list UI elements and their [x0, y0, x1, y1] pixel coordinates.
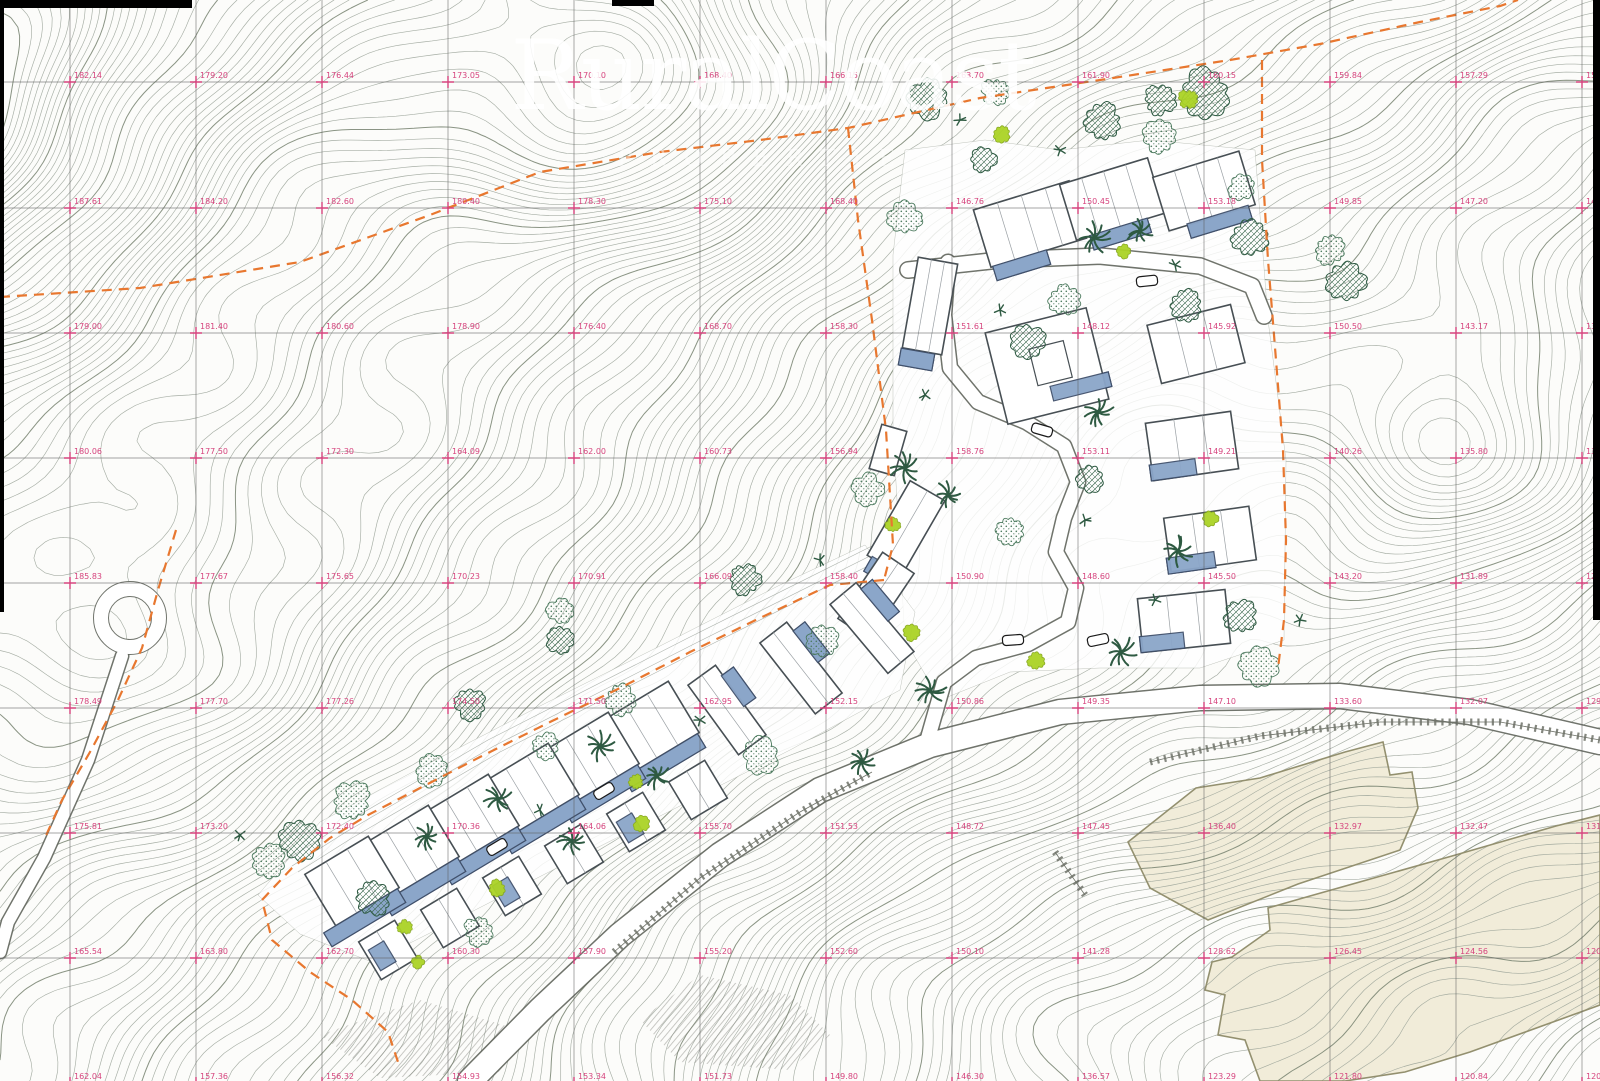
grid-elevation-label: 151.53: [830, 822, 858, 831]
grid-elevation-label: 182.60: [326, 197, 354, 206]
grid-elevation-label: 120.84: [1460, 1072, 1488, 1081]
villa-building: [1135, 590, 1230, 653]
grid-elevation-label: 143.20: [1334, 572, 1362, 581]
site-plan-map: 182.14179.20176.44173.05170.10168.40166.…: [0, 0, 1600, 1081]
grid-elevation-label: 166.15: [830, 71, 858, 80]
grid-elevation-label: 153.34: [578, 1072, 606, 1081]
grid-elevation-label: 131.86: [1586, 822, 1600, 831]
palm-trunk: [928, 689, 932, 693]
grid-elevation-label: 182.14: [74, 71, 102, 80]
grid-elevation-label: 150.50: [1334, 322, 1362, 331]
grid-elevation-label: 170.23: [452, 572, 480, 581]
grid-elevation-label: 175.65: [326, 572, 354, 581]
grid-elevation-label: 148.60: [1082, 572, 1110, 581]
grid-elevation-label: 132.07: [1460, 697, 1488, 706]
grid-elevation-label: 175.10: [704, 197, 732, 206]
grid-elevation-label: 172.30: [326, 447, 354, 456]
grid-elevation-label: 148.72: [956, 822, 984, 831]
grid-elevation-label: 178.30: [578, 197, 606, 206]
grid-elevation-label: 162.04: [74, 1072, 102, 1081]
grid-elevation-label: 175.81: [74, 822, 102, 831]
palm-trunk: [860, 760, 864, 764]
grid-elevation-label: 178.90: [452, 322, 480, 331]
shrub: [1178, 90, 1197, 108]
palm-trunk: [903, 466, 907, 470]
grid-elevation-label: 146.30: [956, 1072, 984, 1081]
grid-elevation-label: 128.62: [1208, 947, 1236, 956]
grid-elevation-label: 147.45: [1082, 822, 1110, 831]
grid-elevation-label: 126.45: [1334, 947, 1362, 956]
grid-elevation-label: 147.20: [1460, 197, 1488, 206]
grid-elevation-label: 143.17: [1460, 322, 1488, 331]
palm-trunk: [1138, 229, 1142, 233]
grid-elevation-label: 120.42: [1586, 947, 1600, 956]
grid-elevation-label: 150.10: [956, 947, 984, 956]
grid-elevation-label: 177.26: [326, 697, 354, 706]
grid-elevation-label: 159.84: [1334, 71, 1362, 80]
grid-elevation-label: 149.35: [1082, 697, 1110, 706]
grid-elevation-label: 180.06: [74, 447, 102, 456]
car-outline: [1136, 275, 1158, 287]
grid-elevation-label: 158.76: [956, 447, 984, 456]
palm-trunk: [598, 744, 602, 748]
grid-elevation-label: 156.94: [830, 447, 858, 456]
grid-elevation-label: 150.45: [1082, 197, 1110, 206]
grid-elevation-label: 157.90: [578, 947, 606, 956]
grid-elevation-label: 140.26: [1334, 447, 1362, 456]
grid-elevation-label: 151.61: [956, 322, 984, 331]
grid-elevation-label: 147.10: [1208, 697, 1236, 706]
grid-elevation-label: 173.20: [200, 822, 228, 831]
grid-elevation-label: 141.28: [1082, 947, 1110, 956]
grid-elevation-label: 173.05: [452, 71, 480, 80]
grid-elevation-label: 177.50: [200, 447, 228, 456]
grid-elevation-label: 136.57: [1082, 1072, 1110, 1081]
grid-elevation-label: 184.20: [200, 197, 228, 206]
palm-trunk: [1092, 236, 1096, 240]
grid-elevation-label: 185.83: [74, 572, 102, 581]
site-plan-svg: 182.14179.20176.44173.05170.10168.40166.…: [0, 0, 1600, 1081]
grid-elevation-label: 132.47: [1460, 822, 1488, 831]
palm-trunk: [1176, 549, 1180, 553]
grid-elevation-label: 150.86: [956, 697, 984, 706]
grid-elevation-label: 162.95: [704, 697, 732, 706]
grid-elevation-label: 181.40: [200, 322, 228, 331]
grid-elevation-label: 177.70: [200, 697, 228, 706]
grid-elevation-label: 149.85: [1334, 197, 1362, 206]
grid-elevation-label: 172.40: [326, 822, 354, 831]
grid-elevation-label: 148.12: [1082, 322, 1110, 331]
scan-artifact-bar: [612, 0, 654, 6]
grid-elevation-label: 121.80: [1334, 1072, 1362, 1081]
palm-trunk: [425, 834, 429, 838]
tree-light-canopy: [252, 843, 285, 879]
grid-elevation-label: 155.70: [704, 822, 732, 831]
grid-elevation-label: 170.10: [578, 71, 606, 80]
grid-elevation-label: 149.21: [1208, 447, 1236, 456]
grid-elevation-label: 157.36: [200, 1072, 228, 1081]
palm-trunk: [946, 493, 950, 497]
palm-trunk: [655, 774, 659, 778]
grid-elevation-label: 178.49: [74, 697, 102, 706]
grid-elevation-label: 179.00: [74, 322, 102, 331]
grid-elevation-label: 170.36: [452, 822, 480, 831]
parked-car: [1002, 634, 1024, 645]
grid-elevation-label: 168.70: [704, 322, 732, 331]
grid-elevation-label: 150.90: [956, 572, 984, 581]
grid-elevation-label: 152.15: [830, 697, 858, 706]
grid-elevation-label: 157.29: [1460, 71, 1488, 80]
grid-elevation-label: 133.60: [1334, 697, 1362, 706]
grid-elevation-label: 132.97: [1334, 822, 1362, 831]
grid-elevation-label: 171.50: [578, 697, 606, 706]
palm-trunk: [1096, 410, 1100, 414]
grid-elevation-label: 158.40: [830, 572, 858, 581]
grid-elevation-label: 136.40: [1208, 822, 1236, 831]
grid-elevation-label: 160.30: [452, 947, 480, 956]
scan-artifact-bar: [0, 0, 4, 612]
grid-elevation-label: 176.44: [326, 71, 354, 80]
grid-elevation-label: 164.09: [452, 447, 480, 456]
grid-elevation-label: 154.93: [452, 1072, 480, 1081]
grid-elevation-label: 162.70: [326, 947, 354, 956]
grid-elevation-label: 153.11: [1082, 447, 1110, 456]
grid-elevation-label: 161.90: [1082, 71, 1110, 80]
grid-elevation-label: 164.06: [578, 822, 606, 831]
tree-light-canopy: [334, 781, 370, 819]
palm-trunk: [496, 797, 500, 801]
scan-artifact-bar: [0, 0, 192, 8]
grid-elevation-label: 168.40: [704, 71, 732, 80]
grid-elevation-label: 145.50: [1208, 572, 1236, 581]
grid-elevation-label: 165.54: [74, 947, 102, 956]
grid-elevation-label: 135.80: [1460, 447, 1488, 456]
grid-elevation-label: 153.18: [1208, 197, 1236, 206]
palm-trunk: [570, 839, 574, 843]
grid-elevation-label: 129.30: [1586, 697, 1600, 706]
grid-elevation-label: 156.32: [326, 1072, 354, 1081]
grid-elevation-label: 146.76: [956, 197, 984, 206]
grid-elevation-label: 145.92: [1208, 322, 1236, 331]
grid-elevation-label: 160.73: [704, 447, 732, 456]
grid-elevation-label: 131.89: [1460, 572, 1488, 581]
tree-light-canopy: [981, 80, 1009, 106]
grid-elevation-label: 179.20: [200, 71, 228, 80]
grid-elevation-label: 158.30: [830, 322, 858, 331]
grid-elevation-label: 176.40: [578, 322, 606, 331]
grid-elevation-label: 180.60: [326, 322, 354, 331]
palm-trunk: [1119, 650, 1123, 654]
grid-elevation-label: 166.09: [704, 572, 732, 581]
grid-elevation-label: 163.80: [200, 947, 228, 956]
grid-elevation-label: 155.20: [704, 947, 732, 956]
grid-elevation-label: 120.36: [1586, 1072, 1600, 1081]
grid-elevation-label: 149.80: [830, 1072, 858, 1081]
grid-elevation-label: 124.56: [1460, 947, 1488, 956]
grid-elevation-label: 187.61: [74, 197, 102, 206]
grid-elevation-label: 174.50: [452, 697, 480, 706]
grid-elevation-label: 163.70: [956, 71, 984, 80]
scan-artifact-bar: [1593, 0, 1600, 620]
grid-elevation-label: 123.29: [1208, 1072, 1236, 1081]
car-outline: [1002, 634, 1024, 645]
grid-elevation-label: 177.67: [200, 572, 228, 581]
parked-car: [1136, 275, 1158, 287]
grid-elevation-label: 151.73: [704, 1072, 732, 1081]
grid-elevation-label: 180.40: [452, 197, 480, 206]
grid-elevation-label: 162.00: [578, 447, 606, 456]
grid-elevation-label: 170.91: [578, 572, 606, 581]
grid-elevation-label: 160.15: [1208, 71, 1236, 80]
grid-elevation-label: 168.40: [830, 197, 858, 206]
grid-elevation-label: 152.60: [830, 947, 858, 956]
